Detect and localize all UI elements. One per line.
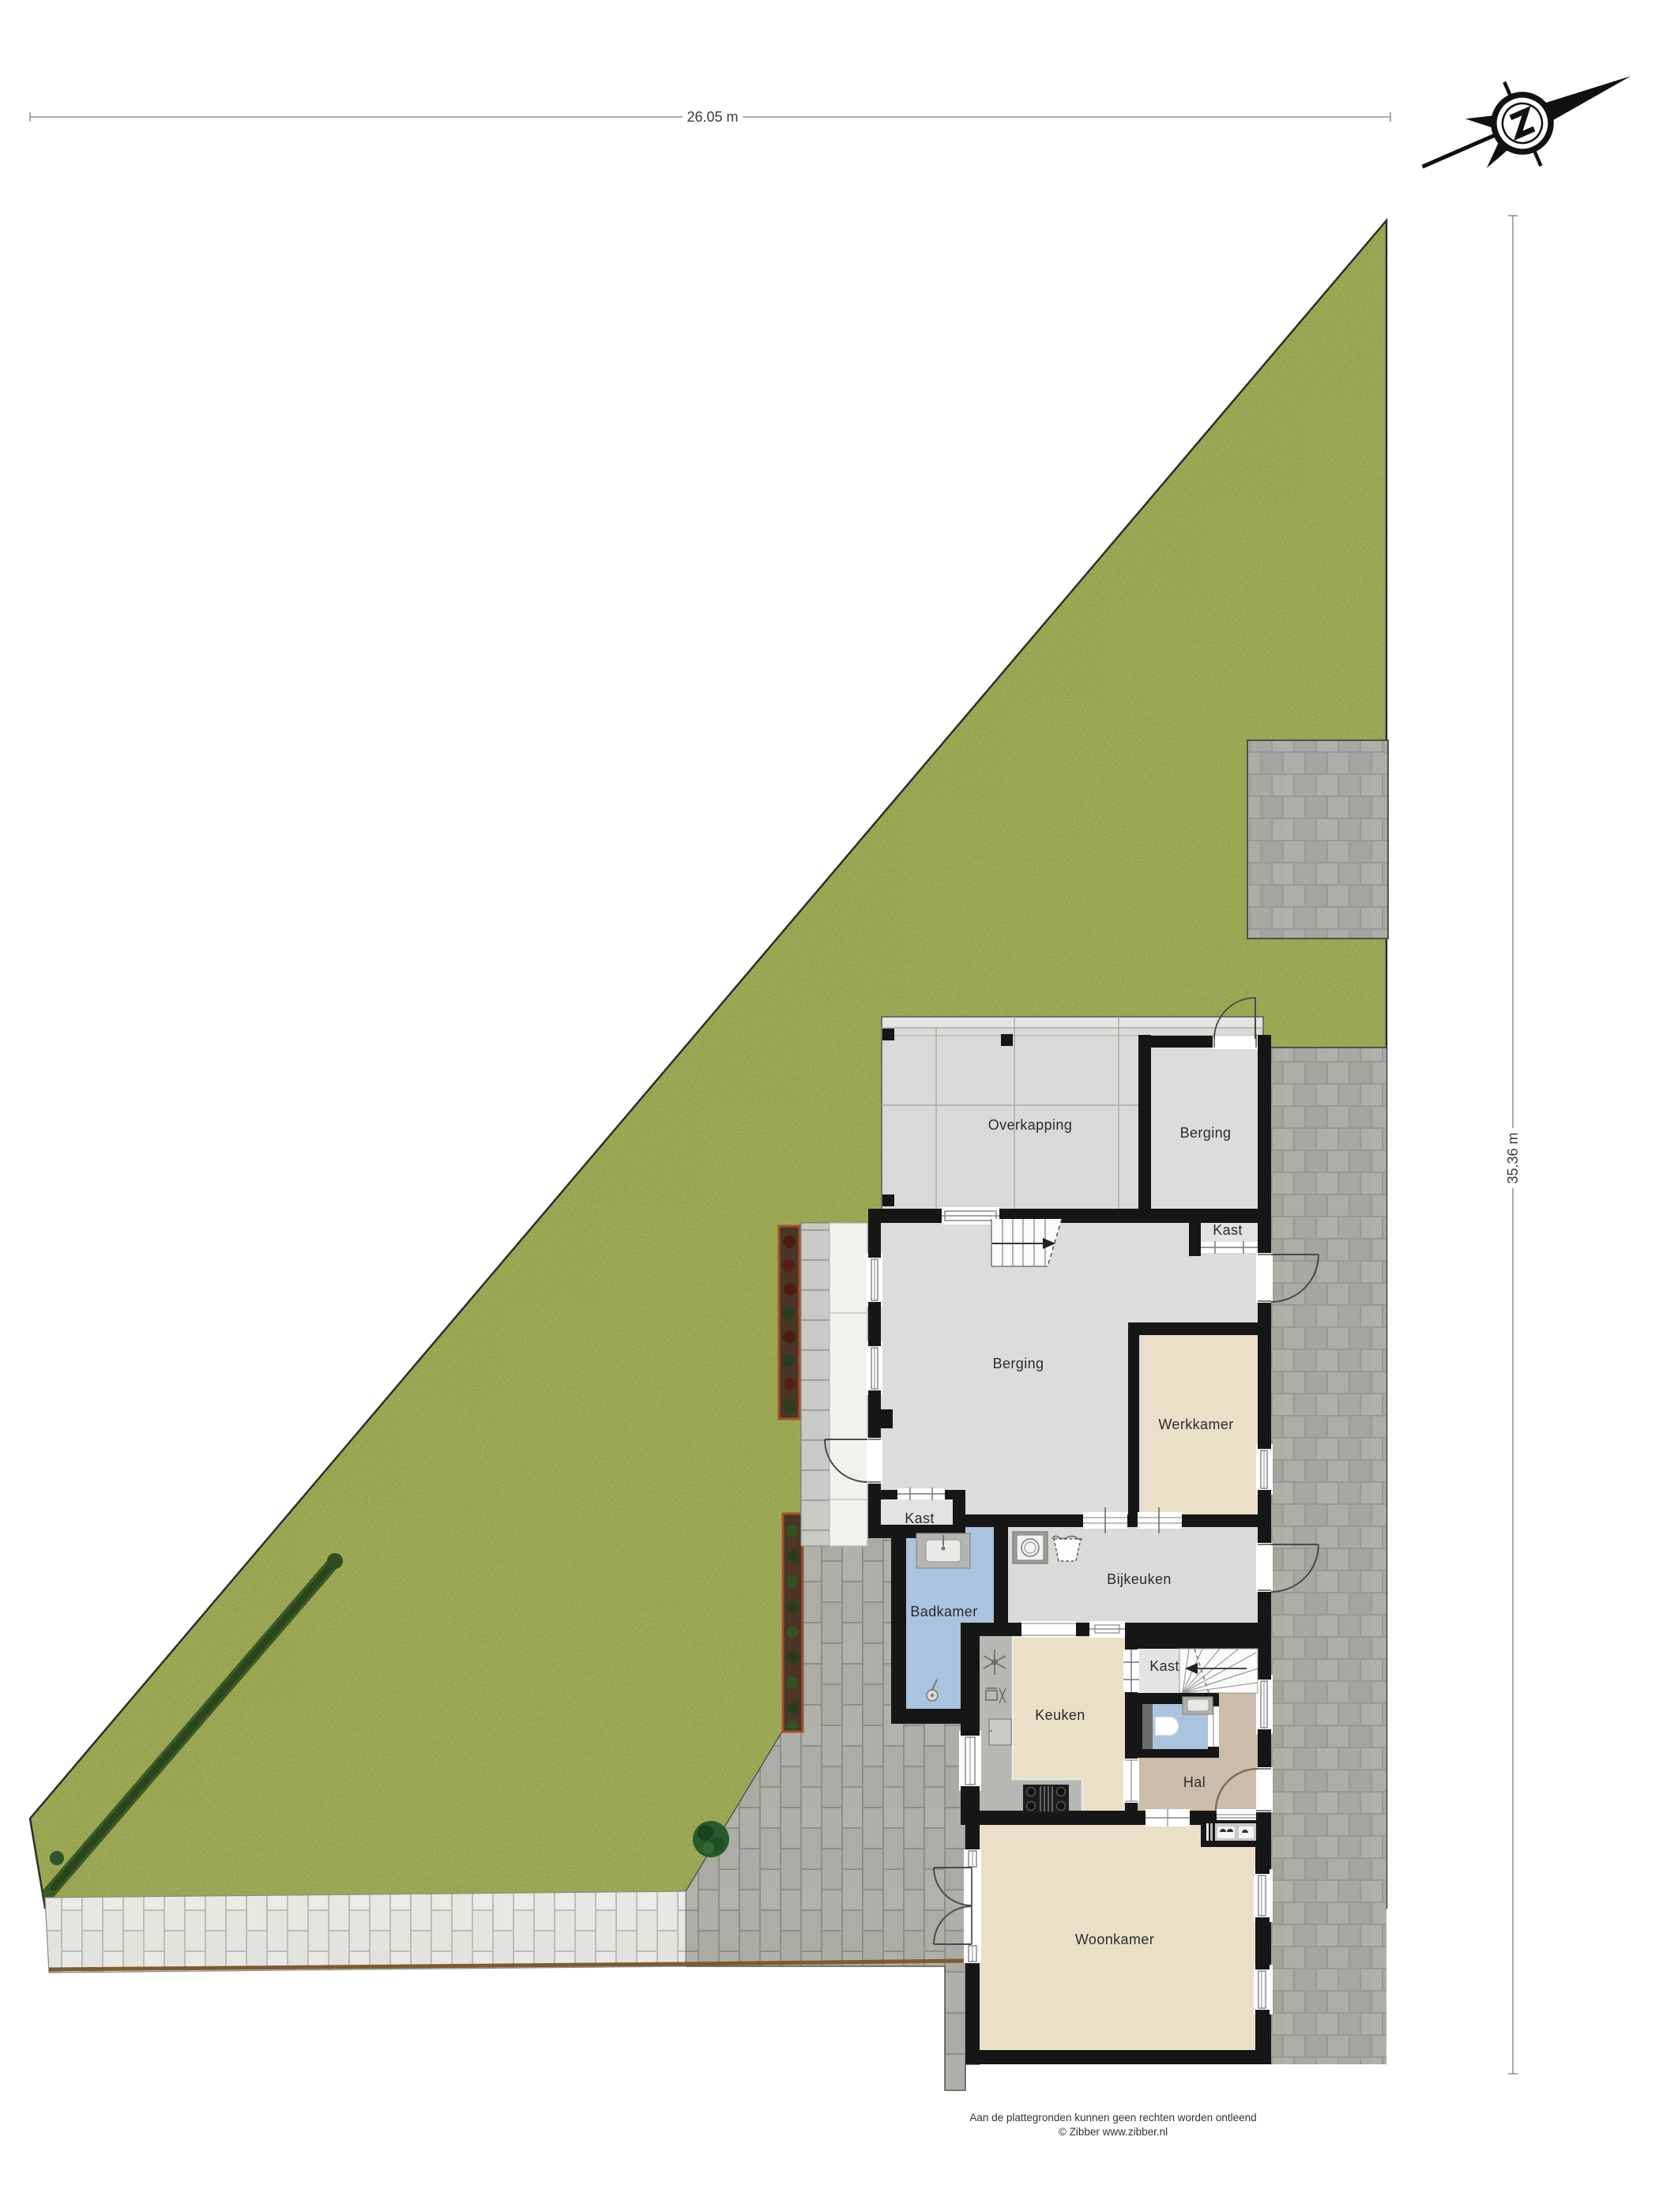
svg-text:Woonkamer: Woonkamer: [1075, 1932, 1154, 1947]
svg-text:Werkkamer: Werkkamer: [1158, 1416, 1233, 1432]
svg-text:Keuken: Keuken: [1035, 1707, 1085, 1723]
svg-text:Badkamer: Badkamer: [910, 1604, 977, 1619]
svg-text:Berging: Berging: [993, 1356, 1044, 1371]
svg-text:Kast: Kast: [1213, 1222, 1243, 1238]
svg-text:Kast: Kast: [1149, 1658, 1179, 1674]
svg-text:Overkapping: Overkapping: [988, 1117, 1072, 1133]
svg-text:Bijkeuken: Bijkeuken: [1107, 1571, 1172, 1587]
svg-text:Berging: Berging: [1180, 1125, 1232, 1141]
svg-text:35.36 m: 35.36 m: [1505, 1132, 1521, 1183]
svg-text:Kast: Kast: [905, 1510, 935, 1526]
svg-text:Hal: Hal: [1183, 1774, 1206, 1790]
svg-text:© Zibber www.zibber.nl: © Zibber www.zibber.nl: [1059, 2126, 1168, 2138]
svg-text:Aan de plattegronden kunnen ge: Aan de plattegronden kunnen geen rechten…: [969, 2112, 1256, 2124]
svg-text:26.05 m: 26.05 m: [687, 109, 738, 125]
